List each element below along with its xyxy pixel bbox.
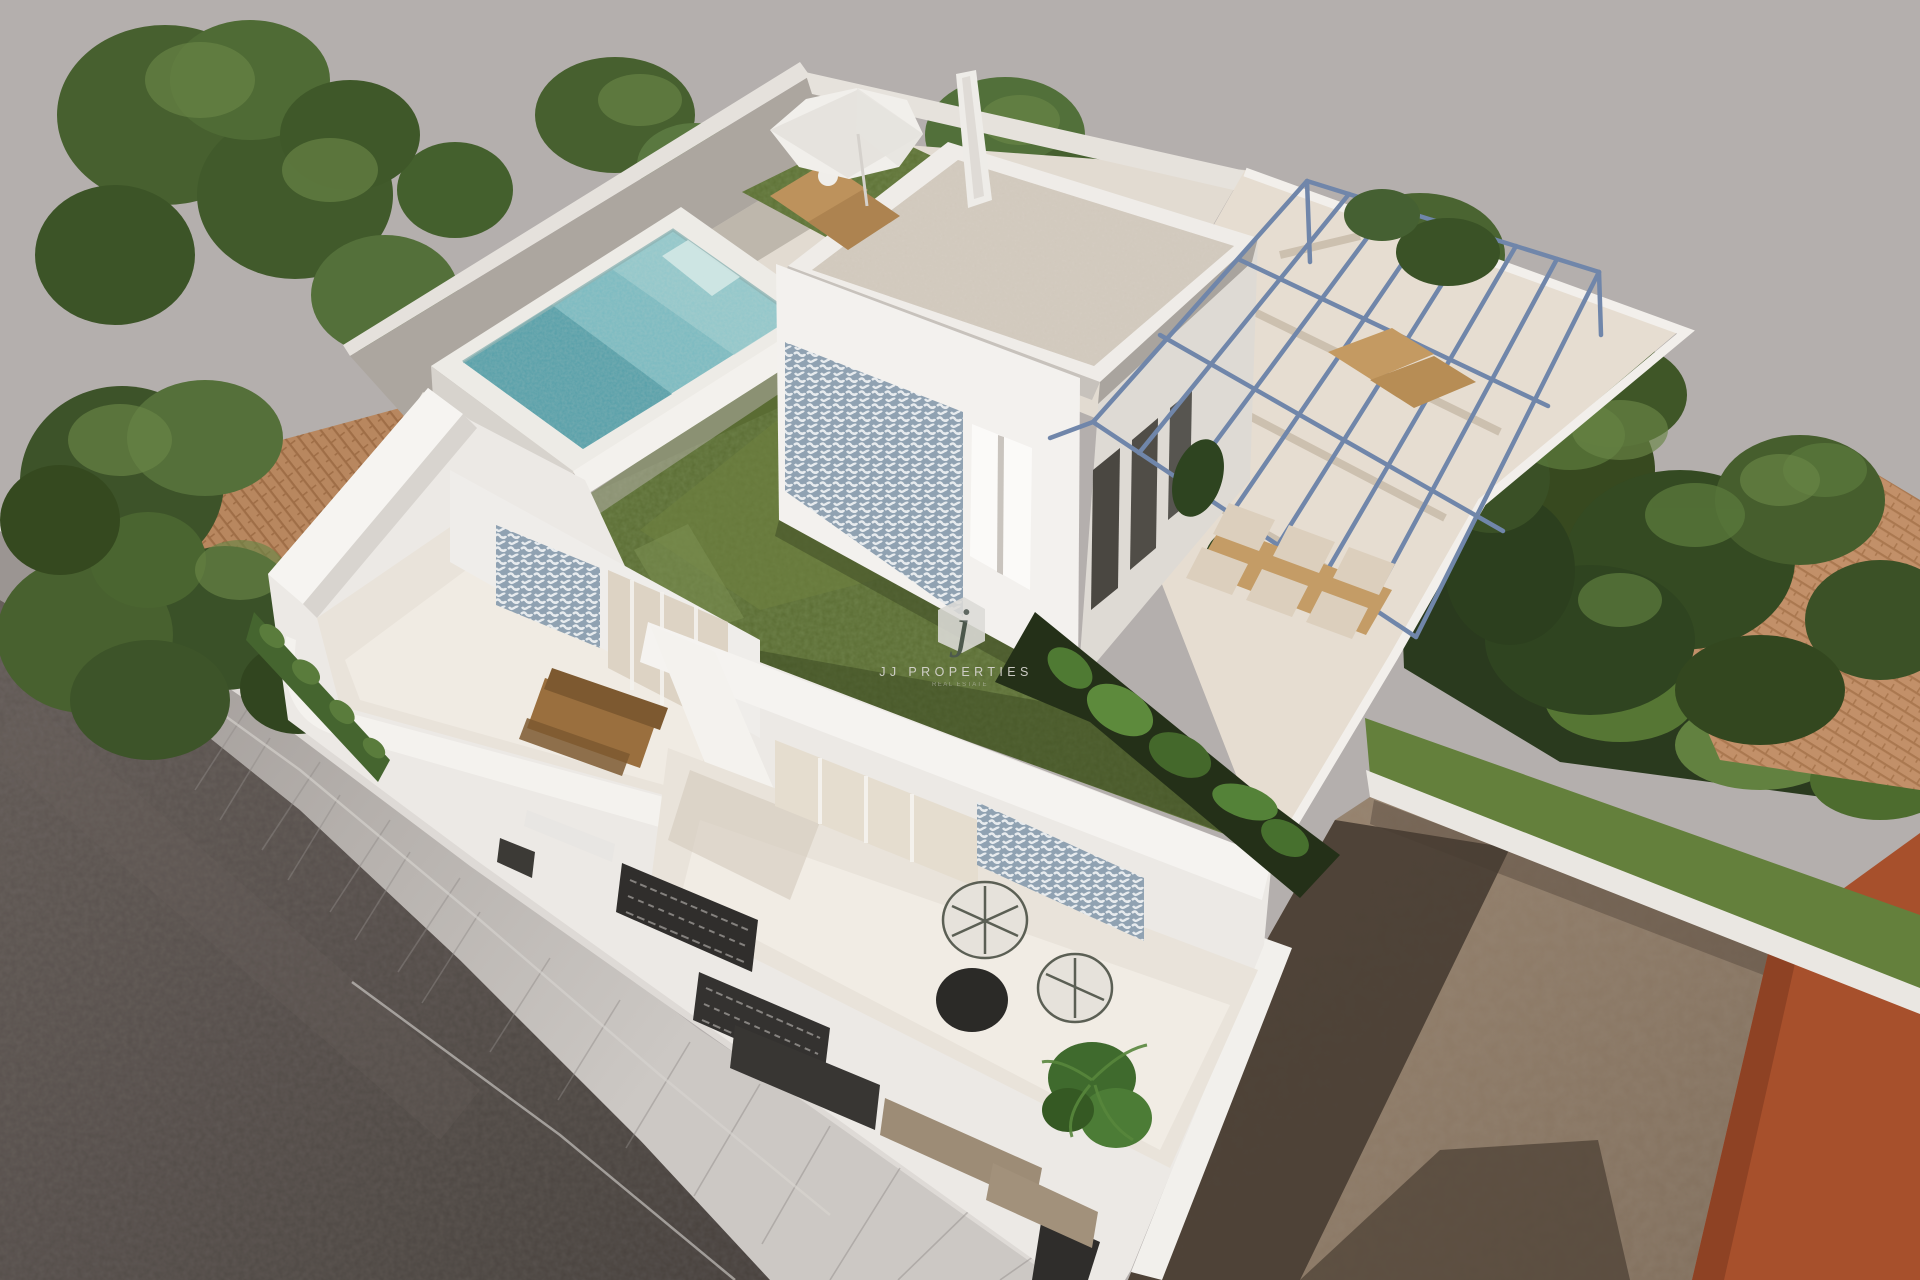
svg-text:JJ PROPERTIES: JJ PROPERTIES — [879, 665, 1033, 679]
svg-text:REAL ESTATE: REAL ESTATE — [932, 682, 988, 688]
